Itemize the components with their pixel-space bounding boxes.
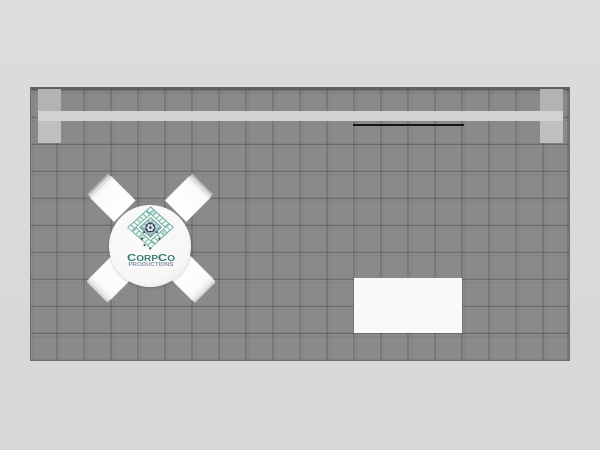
svg-text:PRODUCTIONS: PRODUCTIONS — [128, 262, 173, 268]
